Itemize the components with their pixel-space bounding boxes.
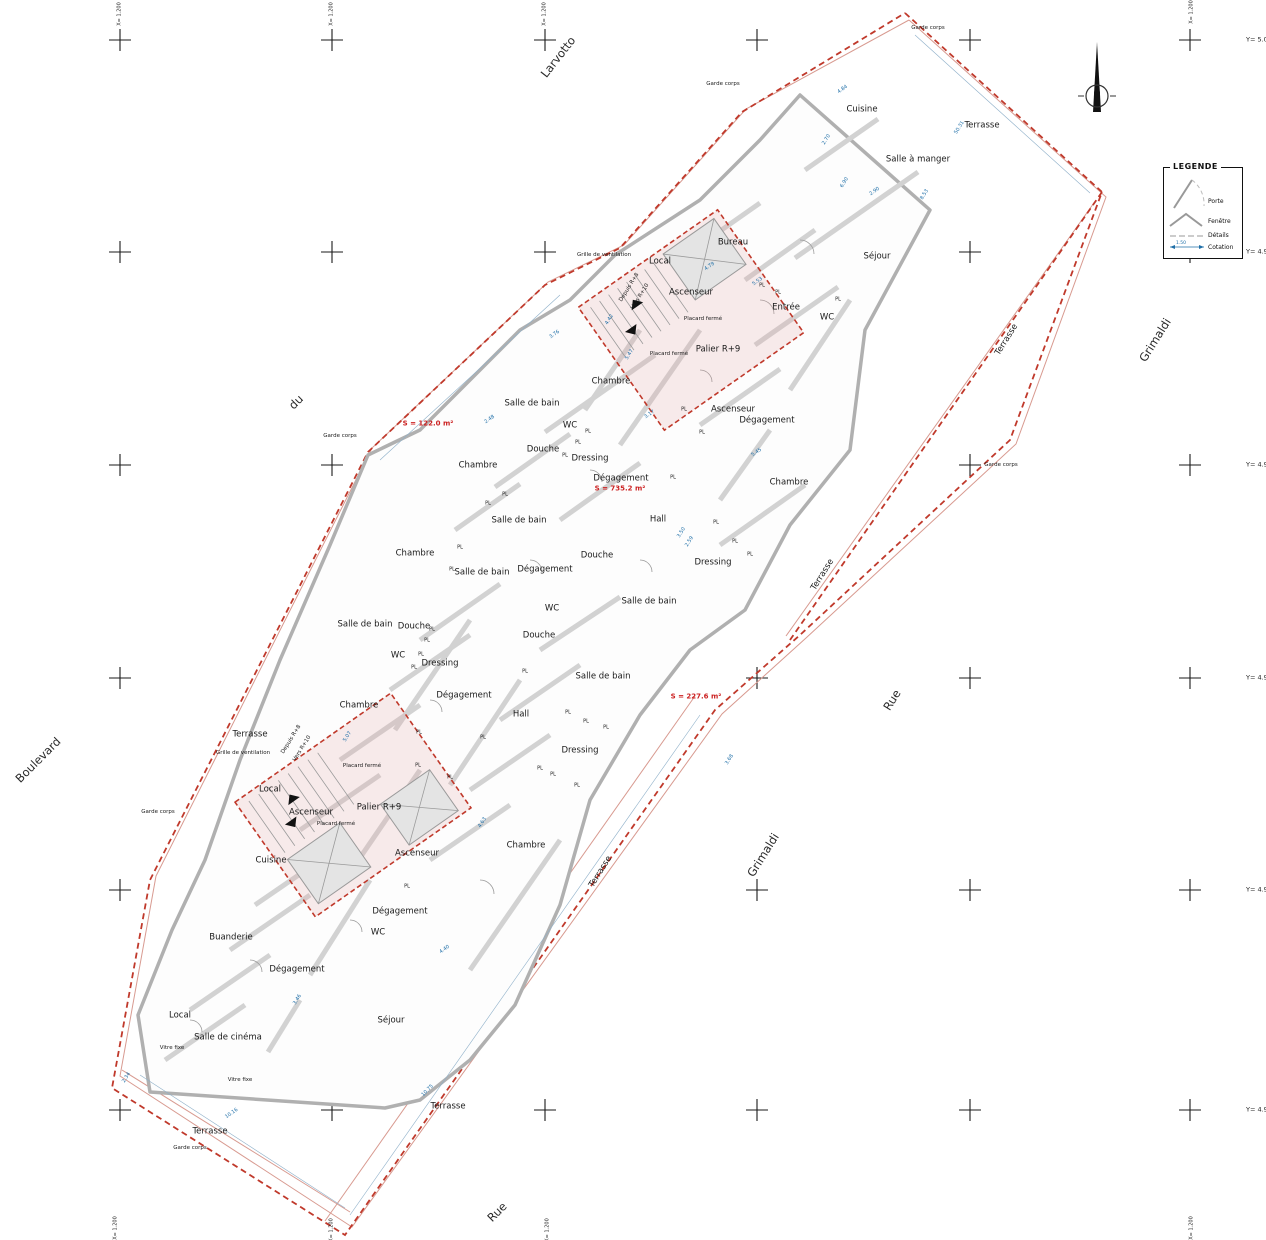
porte-icon xyxy=(1174,180,1192,208)
closet-label: PL xyxy=(775,290,781,295)
room-label: Ascenseur xyxy=(395,850,439,859)
room-label: Palier R+9 xyxy=(357,804,402,813)
room-label: Bureau xyxy=(718,239,748,248)
area-label: S = 122.0 m² xyxy=(403,420,454,427)
closet-label: PL xyxy=(565,710,571,715)
legend-item-fenetre: Fenêtre xyxy=(1208,218,1231,225)
annotation-label: Grille de ventilation xyxy=(216,751,270,757)
room-label: Dressing xyxy=(571,455,608,464)
room-label: Dressing xyxy=(694,559,731,568)
north-arrow-graphic xyxy=(1072,40,1122,125)
room-label: Palier R+9 xyxy=(696,346,741,355)
room-label: WC xyxy=(563,422,577,431)
room-label: WC xyxy=(820,314,834,323)
closet-label: PL xyxy=(429,627,435,632)
room-label: Douche xyxy=(527,446,559,455)
room-label: Entrée xyxy=(772,304,800,313)
annotation-label: Grille de ventilation xyxy=(577,253,631,259)
room-label: Chambre xyxy=(770,479,809,488)
room-label: Chambre xyxy=(507,842,546,851)
annotation-label: Garde corps xyxy=(911,26,944,32)
closet-label: PL xyxy=(415,763,421,768)
closet-label: PL xyxy=(699,430,705,435)
grid-y-label: Y= 4.980 xyxy=(1246,462,1266,469)
closet-label: PL xyxy=(713,520,719,525)
area-label: S = 227.6 m² xyxy=(671,693,722,700)
closet-label: PL xyxy=(747,552,753,557)
annotation-label: Vitre fixe xyxy=(160,1046,185,1052)
closet-label: PL xyxy=(732,539,738,544)
room-label: Cuisine xyxy=(846,106,877,115)
grid-y-label: Y= 4.960 xyxy=(1246,887,1266,894)
closet-label: PL xyxy=(424,638,430,643)
room-label: Dégagement xyxy=(517,566,572,575)
closet-label: PL xyxy=(418,652,424,657)
annotation-label: Placard fermé xyxy=(317,822,355,828)
grid-y-label: Y= 4.990 xyxy=(1246,249,1266,256)
closet-label: PL xyxy=(562,453,568,458)
closet-label: PL xyxy=(537,766,543,771)
closet-label: PL xyxy=(416,730,422,735)
room-label: Salle de bain xyxy=(455,569,510,578)
north-arrow: N xyxy=(1072,40,1122,125)
room-label: Chambre xyxy=(459,462,498,471)
grid-y-label: Y= 4.970 xyxy=(1246,675,1266,682)
room-label: Hall xyxy=(650,516,666,525)
grid-x-label: X= 1.200 xyxy=(117,2,122,26)
room-label: Local xyxy=(259,786,281,795)
legend-item-details: Détails xyxy=(1208,232,1229,239)
legend-cotation-value: 1.50 xyxy=(1176,241,1186,246)
closet-label: PL xyxy=(550,772,556,777)
area-label: S = 735.2 m² xyxy=(595,485,646,492)
grid-x-label: X= 1.200 xyxy=(542,2,547,26)
closet-label: PL xyxy=(502,492,508,497)
legend-box: LEGENDE 1.50 Porte Fenêtre Détails Cotat… xyxy=(1163,167,1243,259)
closet-label: PL xyxy=(585,429,591,434)
room-label: Salle de bain xyxy=(576,673,631,682)
grid-x-label: X= 1.200 xyxy=(1189,0,1194,24)
room-label: Salle à manger xyxy=(886,156,950,165)
room-label: Salle de bain xyxy=(338,621,393,630)
annotation-label: Placard fermé xyxy=(650,352,688,358)
room-label: Cuisine xyxy=(255,857,286,866)
closet-label: PL xyxy=(583,719,589,724)
annotation-label: Garde corps xyxy=(173,1146,206,1152)
grid-x-label: X= 1.200 xyxy=(113,1216,118,1240)
room-label: Salle de cinéma xyxy=(194,1034,262,1043)
closet-label: PL xyxy=(449,567,455,572)
closet-label: PL xyxy=(485,501,491,506)
room-label: Dégagement xyxy=(739,417,794,426)
room-label: Dégagement xyxy=(269,966,324,975)
closet-label: PL xyxy=(480,735,486,740)
room-label: Dégagement xyxy=(593,475,648,484)
room-label: Chambre xyxy=(396,550,435,559)
legend-item-porte: Porte xyxy=(1208,198,1224,205)
room-label: Séjour xyxy=(377,1017,404,1026)
closet-label: PL xyxy=(681,407,687,412)
room-label: Salle de bain xyxy=(492,517,547,526)
room-label: WC xyxy=(371,929,385,938)
closet-label: PL xyxy=(522,669,528,674)
room-label: Terrasse xyxy=(430,1103,465,1112)
room-label: Ascenseur xyxy=(669,289,713,298)
annotation-label: Garde corps xyxy=(141,810,174,816)
fenetre-icon xyxy=(1170,214,1202,226)
closet-label: PL xyxy=(447,775,453,780)
closet-label: PL xyxy=(574,783,580,788)
room-label: Dressing xyxy=(561,747,598,756)
closet-label: PL xyxy=(404,884,410,889)
annotation-label: Vitre fixe xyxy=(228,1078,253,1084)
closet-label: PL xyxy=(835,297,841,302)
closet-label: PL xyxy=(457,545,463,550)
annotation-label: Garde corps xyxy=(984,463,1017,469)
closet-label: PL xyxy=(575,440,581,445)
grid-y-label: Y= 4.950 xyxy=(1246,1107,1266,1114)
room-label: Douche xyxy=(581,552,613,561)
room-label: Dégagement xyxy=(372,908,427,917)
annotation-label: Garde corps xyxy=(323,434,356,440)
annotation-label: Placard fermé xyxy=(343,764,381,770)
grid-x-label: X= 1.200 xyxy=(1189,1216,1194,1240)
grid-x-label: X= 1.200 xyxy=(329,1218,334,1240)
legend-item-cotation: Cotation xyxy=(1208,244,1233,251)
room-label: Ascenseur xyxy=(289,809,333,818)
north-label: N xyxy=(1093,91,1101,101)
room-label: Séjour xyxy=(863,253,890,262)
room-label: Buanderie xyxy=(209,934,253,943)
closet-label: PL xyxy=(670,475,676,480)
room-label: Chambre xyxy=(340,702,379,711)
closet-label: PL xyxy=(411,665,417,670)
room-label: Dégagement xyxy=(436,692,491,701)
annotation-label: Placard fermé xyxy=(684,317,722,323)
grid-x-label: X= 1.200 xyxy=(329,2,334,26)
room-label: Douche xyxy=(523,632,555,641)
room-label: Hall xyxy=(513,711,529,720)
room-label: Terrasse xyxy=(192,1128,227,1137)
grid-y-label: Y= 5.000 xyxy=(1246,37,1266,44)
room-label: Ascenseur xyxy=(711,406,755,415)
room-label: Douche xyxy=(398,623,430,632)
annotation-label: Garde corps xyxy=(706,82,739,88)
closet-label: PL xyxy=(603,725,609,730)
room-label: Chambre xyxy=(592,378,631,387)
floor-plan-drawing xyxy=(0,0,1266,1240)
room-label: Terrasse xyxy=(232,731,267,740)
room-label: Terrasse xyxy=(964,122,999,131)
room-label: Salle de bain xyxy=(622,598,677,607)
room-label: Local xyxy=(169,1012,191,1021)
closet-label: PL xyxy=(759,283,765,288)
room-label: Local xyxy=(649,258,671,267)
floor-plan-canvas: N LEGENDE 1.50 Porte Fenêtre Détails Cot… xyxy=(0,0,1266,1240)
room-label: WC xyxy=(545,605,559,614)
grid-x-label: X= 1.200 xyxy=(545,1218,550,1240)
room-label: WC xyxy=(391,652,405,661)
room-label: Salle de bain xyxy=(505,400,560,409)
room-label: Dressing xyxy=(421,660,458,669)
